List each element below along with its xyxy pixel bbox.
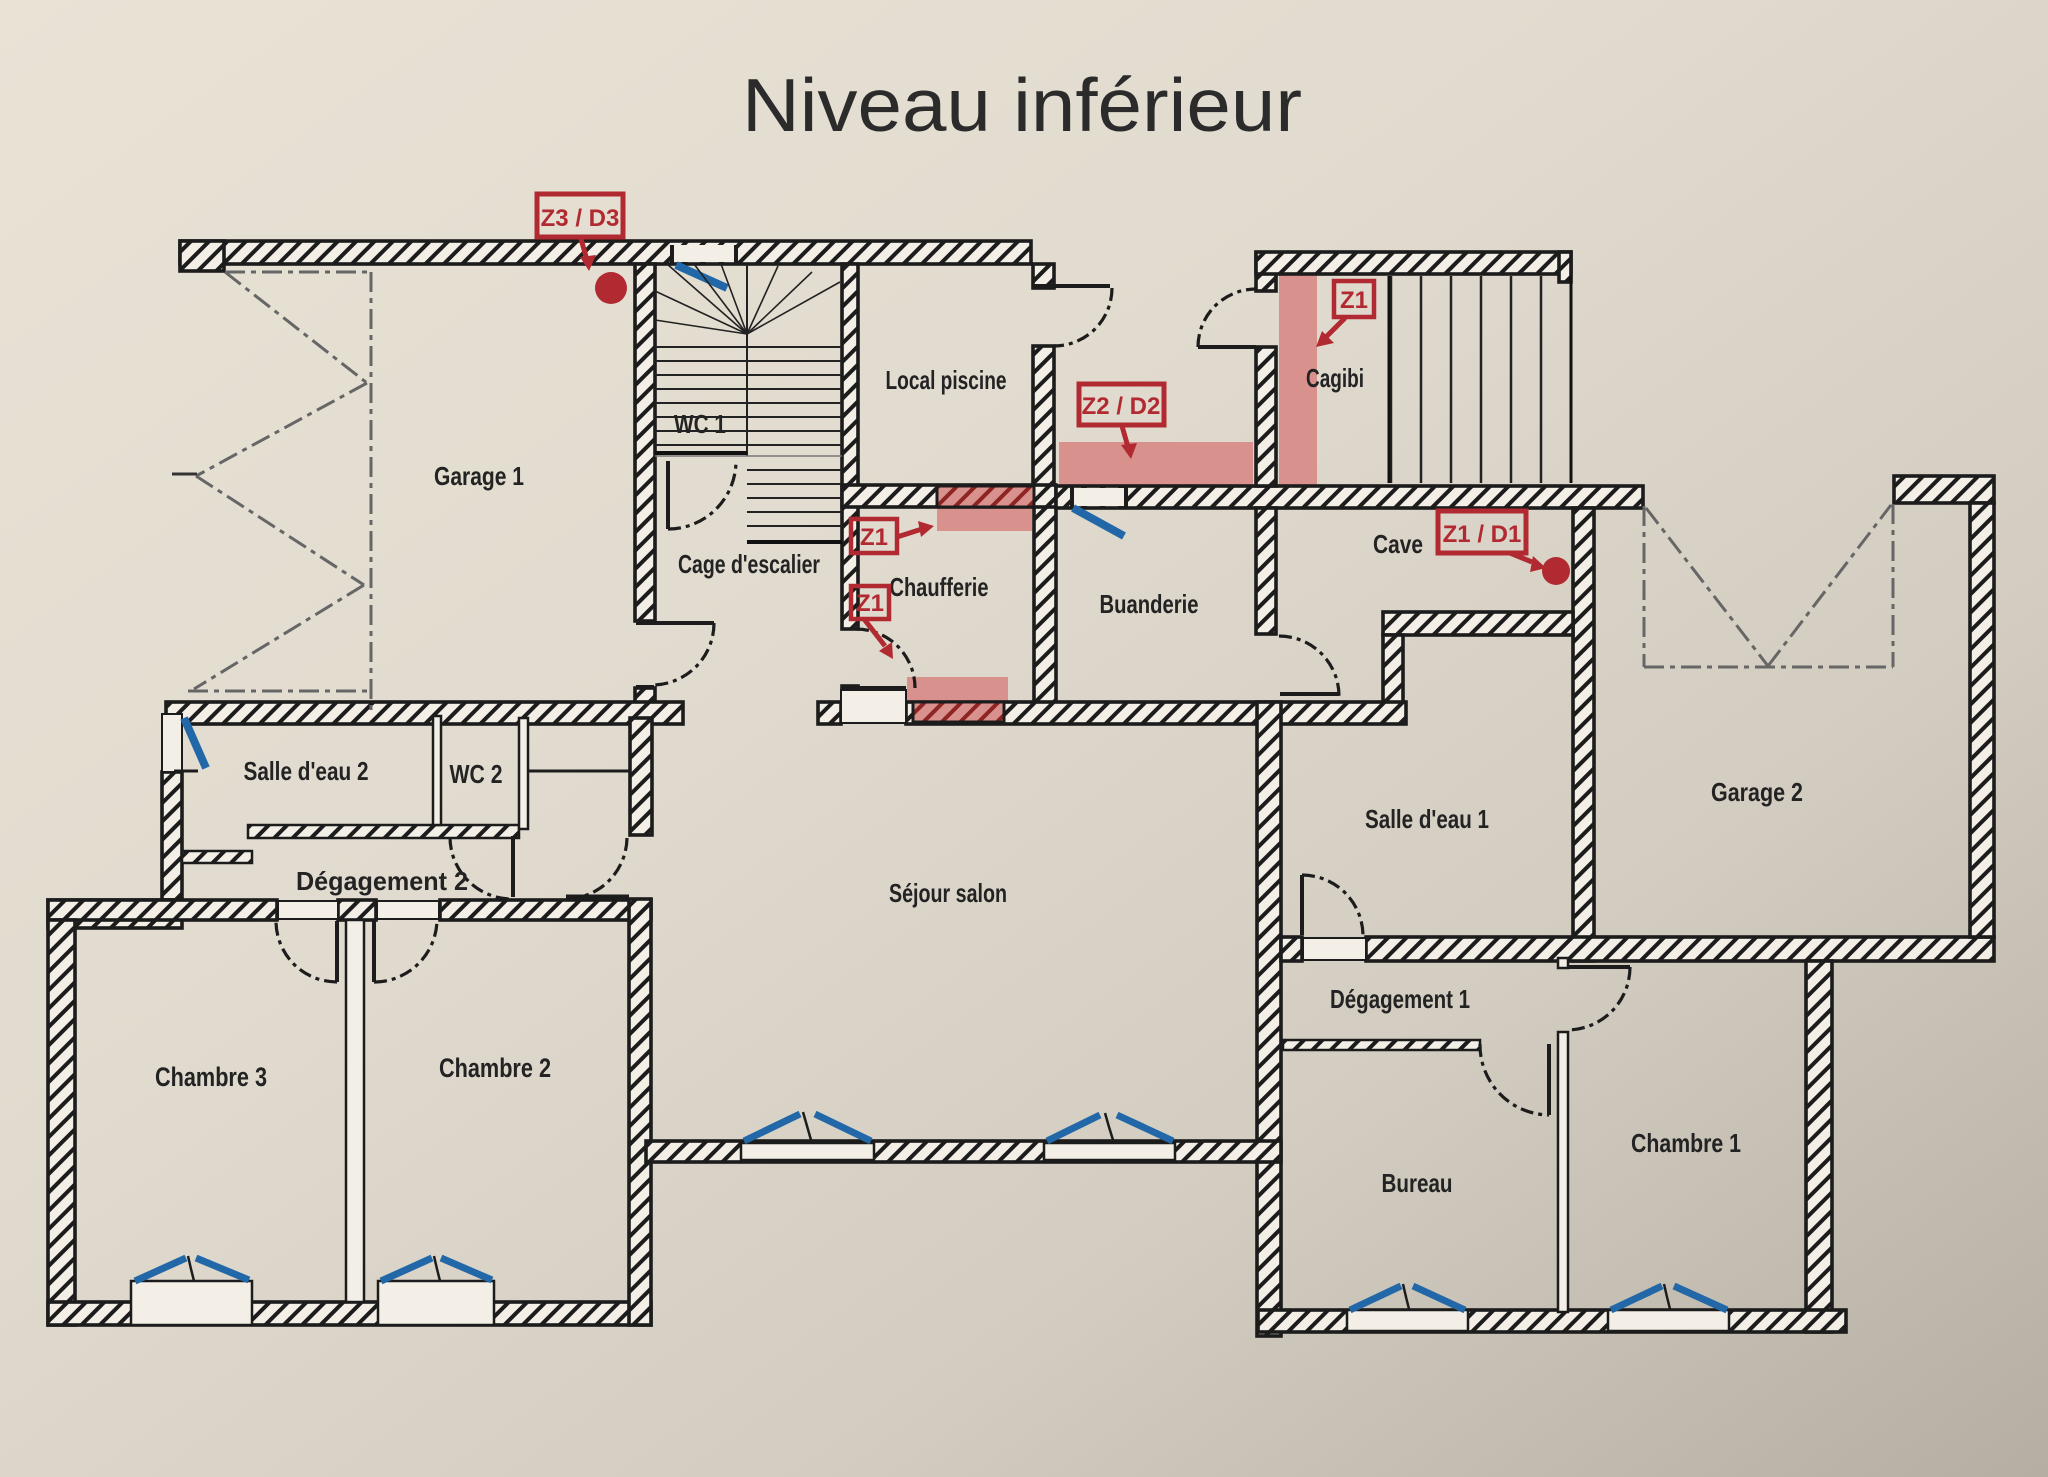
svg-text:Niveau inférieur: Niveau inférieur [742,63,1302,147]
svg-text:Z1: Z1 [860,524,888,551]
svg-text:Salle d'eau 2: Salle d'eau 2 [244,756,369,786]
svg-text:Chambre 2: Chambre 2 [439,1053,551,1083]
svg-text:Z1: Z1 [856,590,884,617]
svg-text:Chambre 1: Chambre 1 [1631,1128,1741,1158]
svg-text:Salle d'eau 1: Salle d'eau 1 [1365,804,1489,834]
svg-text:Bureau: Bureau [1382,1168,1453,1198]
svg-text:Dégagement 1: Dégagement 1 [1330,984,1470,1014]
svg-text:Local piscine: Local piscine [886,365,1007,395]
svg-text:Chaufferie: Chaufferie [890,572,989,602]
svg-text:Cave: Cave [1373,529,1423,559]
svg-text:Cage d'escalier: Cage d'escalier [678,549,820,579]
svg-text:Z1: Z1 [1340,287,1368,314]
svg-text:WC 2: WC 2 [450,759,503,789]
svg-text:Z3 / D3: Z3 / D3 [541,205,620,232]
svg-text:Séjour salon: Séjour salon [889,878,1007,908]
svg-text:WC 1: WC 1 [674,409,726,439]
svg-text:Chambre 3: Chambre 3 [155,1062,267,1092]
svg-text:Dégagement 2: Dégagement 2 [296,866,468,896]
svg-text:Z1 / D1: Z1 / D1 [1443,521,1522,548]
svg-text:Z2 / D2: Z2 / D2 [1082,393,1161,420]
svg-text:Garage 2: Garage 2 [1711,777,1803,807]
svg-text:Cagibi: Cagibi [1306,363,1364,393]
svg-text:Buanderie: Buanderie [1100,589,1199,619]
svg-text:Garage 1: Garage 1 [434,461,524,491]
